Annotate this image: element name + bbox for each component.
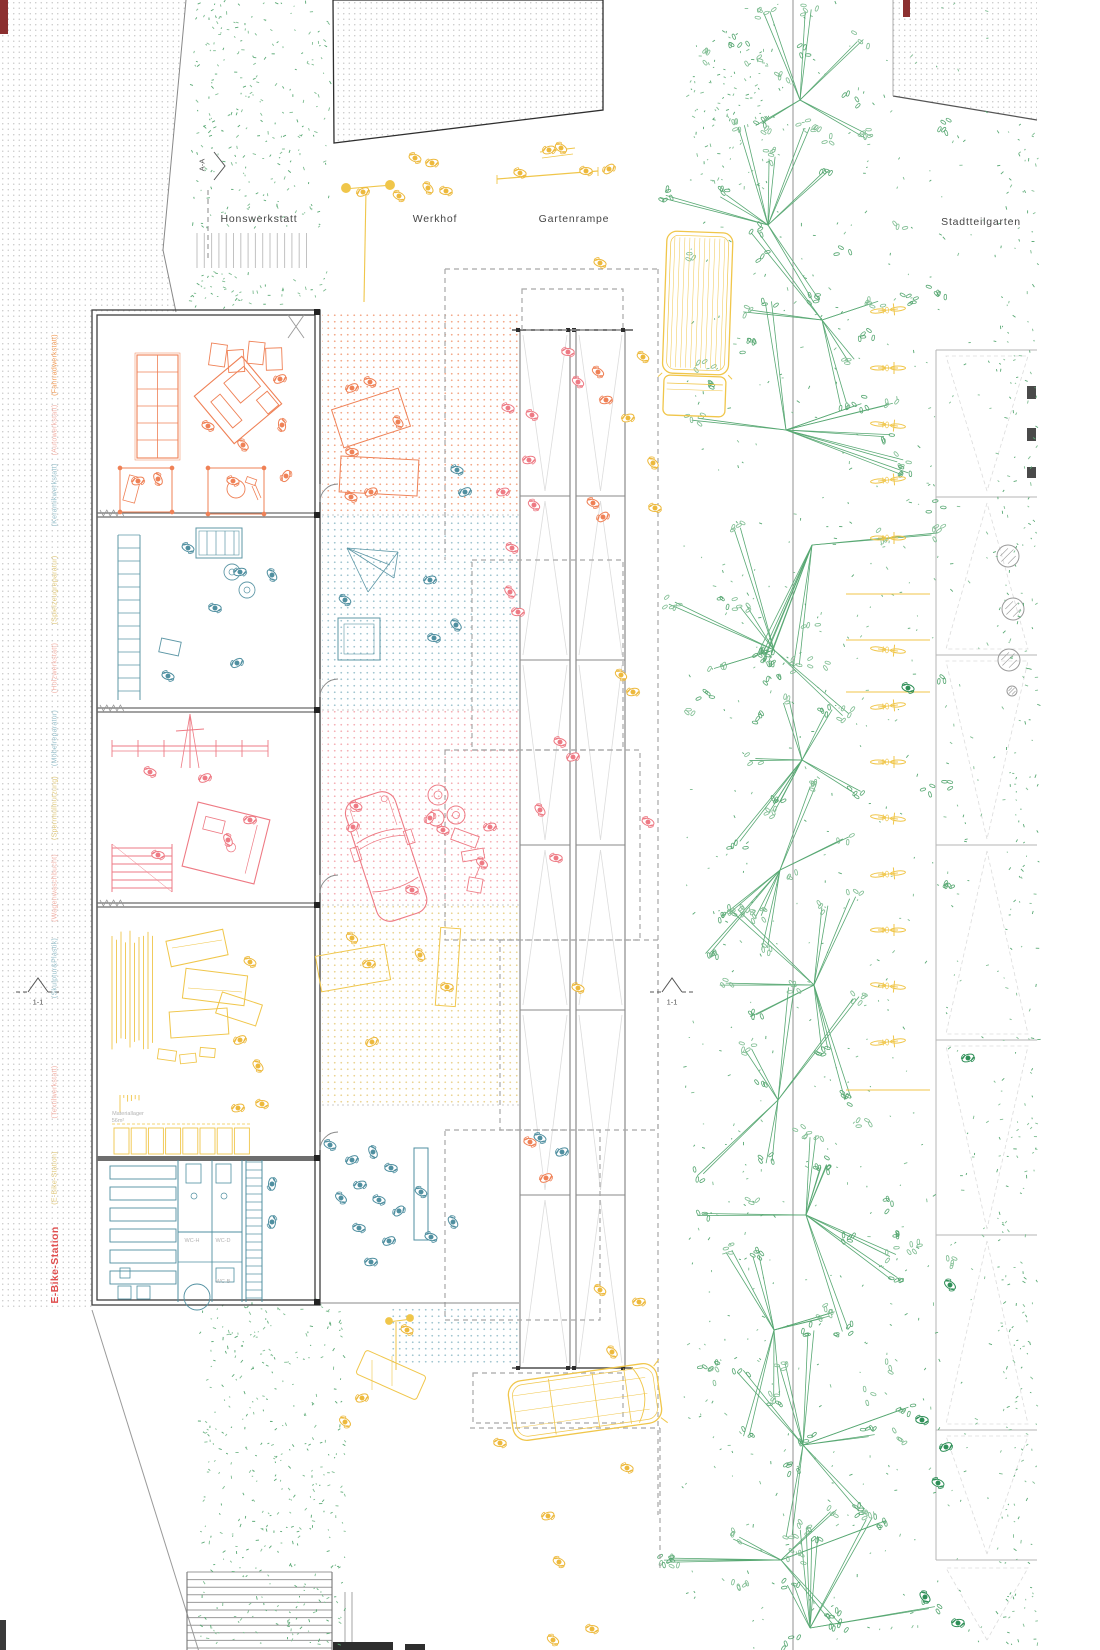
room-label-moebelreparatur: (Möbelreparatur): [52, 710, 59, 766]
person-figure: [592, 256, 608, 270]
person-figure: [541, 142, 558, 157]
room-label-keramikwerkstatt: (Keramikwerkstatt): [52, 464, 59, 527]
vegetation: [189, 0, 1041, 1650]
bike-racks: [846, 302, 930, 1090]
person-figure: [228, 655, 246, 672]
person-figure: [343, 1152, 360, 1168]
room-ebike-station: [110, 1148, 428, 1310]
annotation-wc-b: WC-B: [216, 1279, 231, 1285]
person-figure: [570, 981, 586, 995]
room-label-fahrradwerkstatt: (Fahrradwerkstatt): [52, 334, 59, 396]
person-figure: [540, 1508, 557, 1523]
person-figure: [544, 1632, 561, 1648]
person-figure: [271, 371, 288, 387]
person-figure: [230, 1100, 247, 1115]
room-label-textilwerkstatt: (Textilwerkstatt): [52, 1066, 59, 1119]
annotation-materiallager-area: 56m²: [112, 1118, 125, 1124]
room-label-wagenwaschbucht: (Wagenwaschbucht): [52, 854, 59, 922]
person-figure: [231, 1032, 248, 1048]
room-label-spielzeugreparatur: (Spielzeugreparatur): [52, 556, 59, 625]
section-marker-11-mid-label: 1-1: [667, 998, 678, 1007]
person-figure: [275, 417, 288, 433]
person-figure: [648, 503, 662, 514]
person-figure: [380, 1233, 397, 1249]
person-figure: [550, 1554, 567, 1570]
person-figure: [585, 1624, 599, 1635]
person-figure: [365, 1143, 381, 1160]
person-figure: [424, 156, 440, 170]
person-figure: [619, 1461, 635, 1474]
person-figure: [278, 467, 294, 484]
annotation-wc-h: WC-H: [185, 1238, 200, 1244]
person-figure: [322, 1137, 339, 1152]
person-figure: [390, 188, 407, 204]
annotation-wc-d: WC-D: [216, 1238, 231, 1244]
person-figure: [631, 1295, 647, 1309]
person-figure: [200, 419, 216, 433]
person-figure: [640, 814, 657, 829]
person-figure: [439, 186, 453, 197]
person-figure: [363, 1255, 379, 1269]
person-figure: [625, 685, 641, 699]
room-label-ebike-station-main: E-Bike-Station: [49, 1226, 61, 1303]
site-plan-canvas: Honswerkstatt Werkhof Gartenrampe Stadtt…: [0, 0, 1100, 1650]
person-figure: [255, 1099, 269, 1110]
person-figure: [390, 1202, 408, 1220]
section-marker-aa-label: A-A: [198, 159, 207, 172]
person-figure: [263, 566, 280, 584]
person-figure: [352, 1177, 369, 1192]
person-figure: [585, 495, 602, 510]
person-figure: [525, 497, 542, 513]
person-figure: [591, 1282, 608, 1298]
person-figure: [407, 150, 424, 165]
person-figure: [423, 1230, 439, 1244]
person-figure: [353, 1390, 370, 1406]
person-figure: [234, 436, 252, 453]
area-label-werkhof: Werkhof: [413, 213, 458, 225]
person-figure: [561, 347, 575, 358]
person-figure: [160, 669, 176, 683]
person-figure: [589, 364, 606, 380]
room-label-skulptur-plastik: (Skulptur&Plastik): [52, 938, 59, 998]
section-marker-11-left-label: 1-1: [33, 998, 44, 1007]
person-figure: [444, 1213, 461, 1231]
room-label-autowerkstatt: (Autowerkstatt): [52, 405, 59, 456]
person-figure: [384, 1163, 398, 1174]
person-figure: [612, 667, 629, 683]
person-figure: [142, 765, 158, 779]
person-figure: [524, 407, 541, 422]
person-figure: [208, 603, 222, 614]
person-figure: [600, 160, 618, 177]
room-label-ebike-station: (E-Bike-Station): [52, 1151, 59, 1204]
person-figure: [930, 1475, 947, 1490]
person-figure: [196, 770, 213, 786]
person-figure: [549, 853, 563, 864]
person-figure: [569, 374, 586, 390]
person-figure: [232, 565, 248, 579]
person-figure: [151, 850, 165, 861]
person-figure: [916, 1588, 934, 1606]
person-figure: [521, 453, 537, 467]
person-figure: [594, 508, 612, 525]
person-figure: [354, 184, 371, 200]
ground-textures: [0, 0, 1037, 1367]
annotation-materiallager: Materiallager: [112, 1111, 144, 1117]
person-figure: [242, 954, 259, 969]
person-figure: [900, 681, 916, 695]
person-figure: [493, 1438, 507, 1449]
person-figure: [249, 1057, 267, 1075]
person-figure: [150, 470, 166, 487]
van: [506, 1359, 667, 1444]
person-figure: [371, 1193, 387, 1206]
person-figure: [915, 1415, 929, 1426]
person-figure: [352, 1223, 366, 1234]
person-figure: [603, 1343, 621, 1360]
person-figure: [419, 179, 437, 197]
person-figure: [531, 801, 549, 819]
area-label-honswerkstatt: Honswerkstatt: [221, 213, 298, 225]
person-figure: [336, 1414, 354, 1431]
person-figure: [180, 540, 197, 555]
person-figure: [620, 410, 637, 425]
person-figure: [552, 735, 568, 749]
person-figure: [564, 749, 581, 765]
person-figure: [941, 1277, 959, 1294]
person-figure: [644, 454, 662, 471]
person-figure: [553, 1144, 570, 1160]
truck: [657, 231, 737, 417]
person-figure: [332, 1190, 350, 1207]
person-figure: [598, 393, 614, 407]
person-figure: [412, 1184, 429, 1200]
site-plan-drawing: [0, 0, 1100, 1650]
area-label-stadtteilgarten: Stadtteilgarten: [941, 216, 1021, 228]
person-figure: [634, 349, 651, 365]
person-figure: [950, 1616, 966, 1629]
person-figure: [579, 166, 593, 177]
person-figure: [267, 1177, 278, 1191]
area-label-gartenrampe: Gartenrampe: [539, 213, 610, 225]
person-figure: [267, 1215, 278, 1229]
room-label-sperrmuellnutzung: (Sperrmüllnutzung): [52, 776, 59, 840]
person-figure: [960, 1050, 977, 1065]
room-label-holzwerkstatt: (Holzwerkstatt): [52, 643, 59, 693]
